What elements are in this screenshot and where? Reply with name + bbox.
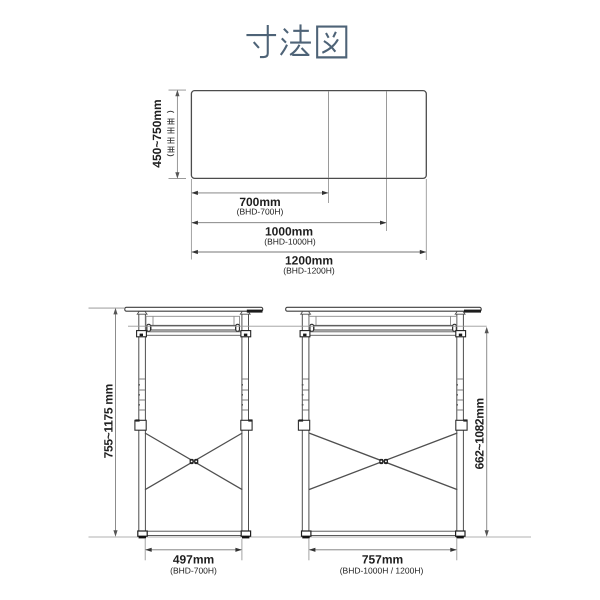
svg-text:(BHD-700H): (BHD-700H) xyxy=(170,566,217,576)
svg-text:755~1175 mm: 755~1175 mm xyxy=(102,384,116,458)
svg-text:(BHD-700H): (BHD-700H) xyxy=(237,207,284,217)
svg-text:(BHD-1000H): (BHD-1000H) xyxy=(264,237,316,247)
svg-text:(BHD-1000H / 1200H): (BHD-1000H / 1200H) xyxy=(340,566,424,576)
svg-text:662~1082mm: 662~1082mm xyxy=(473,398,487,469)
svg-text:757mm: 757mm xyxy=(362,553,403,567)
svg-text:497mm: 497mm xyxy=(173,553,214,567)
svg-text:450~750mm: 450~750mm xyxy=(150,99,164,167)
svg-text:(BHD-1200H): (BHD-1200H) xyxy=(283,266,335,276)
